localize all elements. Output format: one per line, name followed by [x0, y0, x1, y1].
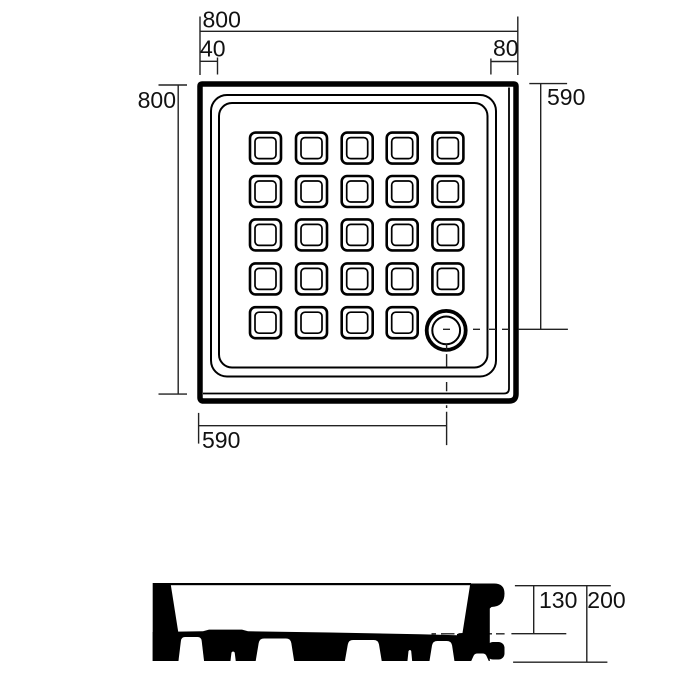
- svg-text:130: 130: [539, 587, 577, 613]
- svg-text:590: 590: [202, 427, 240, 453]
- svg-text:40: 40: [200, 35, 226, 61]
- svg-text:80: 80: [493, 35, 519, 61]
- svg-text:200: 200: [587, 587, 625, 613]
- svg-text:800: 800: [203, 7, 241, 33]
- svg-text:590: 590: [547, 84, 585, 110]
- svg-text:800: 800: [138, 87, 176, 113]
